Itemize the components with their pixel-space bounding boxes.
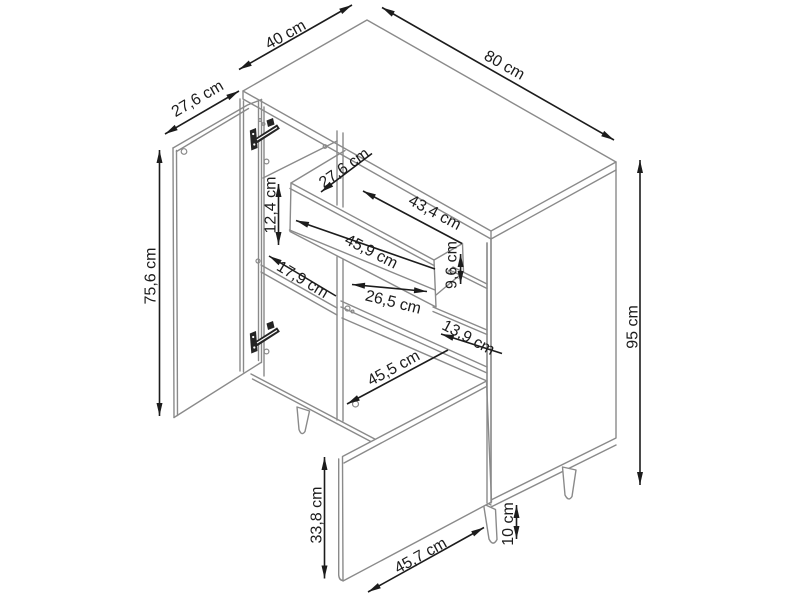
svg-text:12,4 cm: 12,4 cm: [263, 177, 280, 234]
svg-text:10 cm: 10 cm: [500, 502, 517, 546]
svg-text:33,8 cm: 33,8 cm: [309, 487, 326, 544]
svg-text:95 cm: 95 cm: [625, 305, 642, 349]
svg-text:9,6 cm: 9,6 cm: [444, 241, 461, 289]
svg-text:75,6 cm: 75,6 cm: [143, 248, 160, 305]
